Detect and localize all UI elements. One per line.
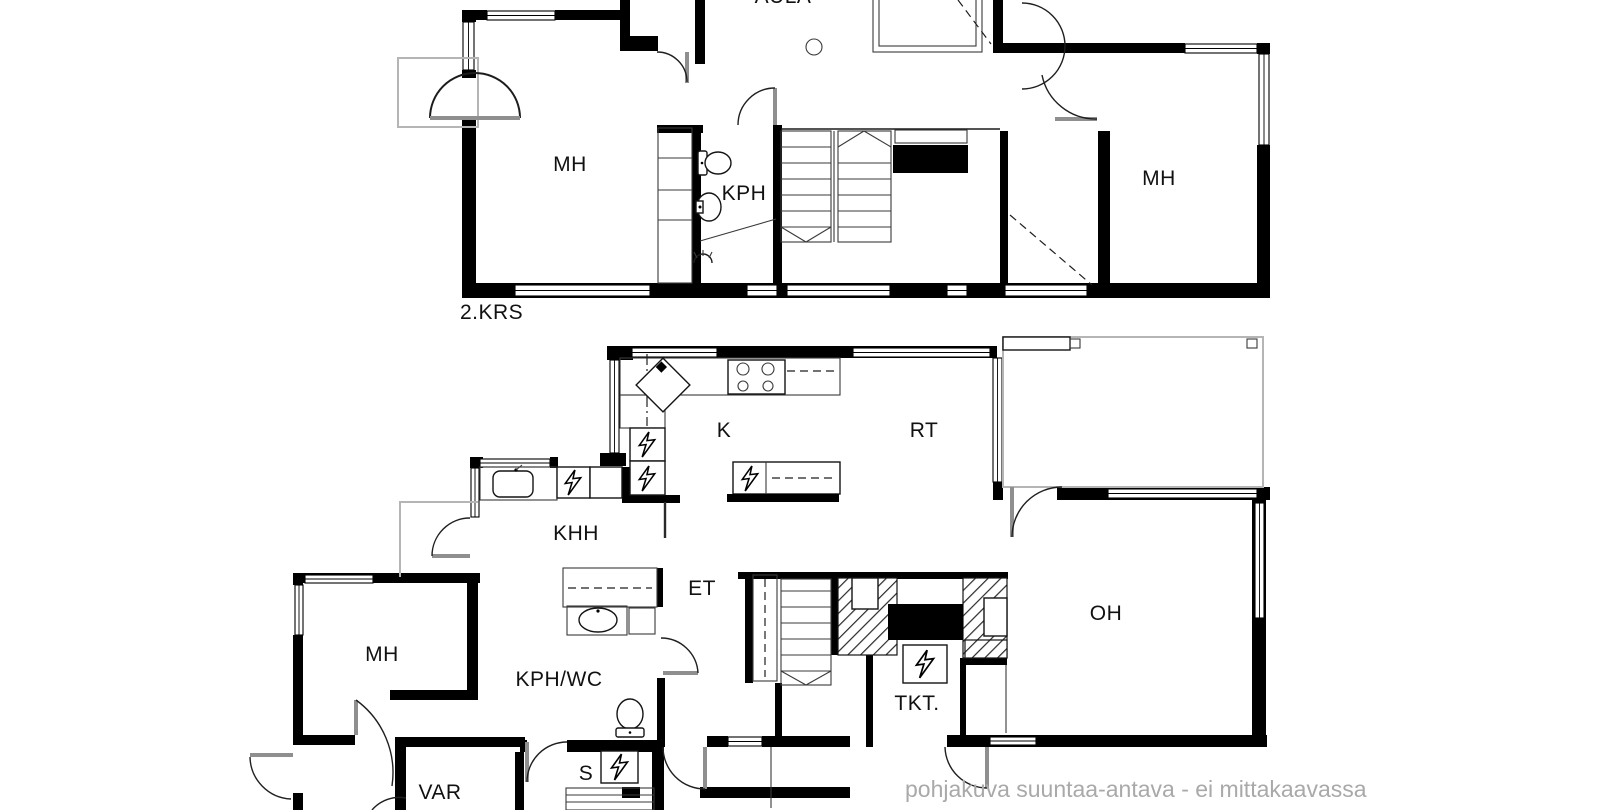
- ceiling-point-icon: [806, 39, 822, 55]
- utility-sink-fixture: [480, 465, 557, 500]
- kitchen-island: [727, 462, 840, 502]
- floor-plan-canvas: AULA MH KPH MH 2.KRS: [0, 0, 1600, 810]
- sauna-bench: [566, 788, 654, 810]
- closet-diagonal: [1010, 215, 1092, 285]
- terrace-outline: [1003, 337, 1263, 487]
- shower-screen: [700, 219, 776, 241]
- room-label-aula: AULA: [755, 0, 812, 8]
- room-label-mh-1f: MH: [365, 643, 399, 666]
- room-label-oh: OH: [1090, 602, 1123, 625]
- floor-label-2krs: 2.KRS: [460, 301, 523, 324]
- floor1-plan: K RT KHH ET MH KPH/WC VAR S TKT. OH: [250, 337, 1270, 810]
- wardrobe-column: [658, 128, 692, 283]
- room-label-et: ET: [688, 577, 716, 600]
- room-label-rt: RT: [910, 419, 939, 442]
- footer-note: pohjakuva suuntaa-antava - ei mittakaava…: [905, 776, 1367, 802]
- room-label-kph-wc: KPH/WC: [516, 668, 603, 691]
- sink-fixture: [696, 193, 721, 221]
- room-label-khh: KHH: [553, 522, 599, 545]
- chimney-shelf: [895, 130, 967, 143]
- balcony-double-door: [430, 73, 520, 118]
- stove-fixture: [728, 360, 785, 394]
- corner-sink-fixture: [636, 358, 690, 412]
- room-label-mh-2f-left: MH: [553, 153, 587, 176]
- toilet-fixture: [698, 151, 731, 175]
- floor2-plan: AULA MH KPH MH 2.KRS: [398, 0, 1270, 324]
- room-label-mh-2f-right: MH: [1142, 167, 1176, 190]
- room-label-s: S: [579, 762, 594, 785]
- hall-closet: [563, 568, 657, 607]
- room-label-tkt: TKT.: [894, 692, 939, 715]
- skylight-outline: [873, 0, 991, 52]
- porch-outline: [400, 502, 478, 577]
- vanity-sink-fixture: [567, 606, 655, 635]
- room-label-k: K: [717, 419, 732, 442]
- room-label-kph-2f: KPH: [722, 182, 767, 205]
- sauna-stove-fixture: [601, 751, 638, 783]
- floor-plan-image: AULA MH KPH MH 2.KRS: [0, 0, 1600, 810]
- toilet-fixture: [616, 699, 644, 737]
- chimney-block: [893, 145, 968, 173]
- fridge-freezer-fixture: [630, 428, 665, 495]
- washer-fixture: [557, 467, 622, 498]
- door-arc: [657, 3, 1097, 125]
- staircase-lower: [753, 575, 831, 685]
- electrical-unit-fixture: [903, 645, 947, 683]
- room-label-var: VAR: [418, 781, 461, 804]
